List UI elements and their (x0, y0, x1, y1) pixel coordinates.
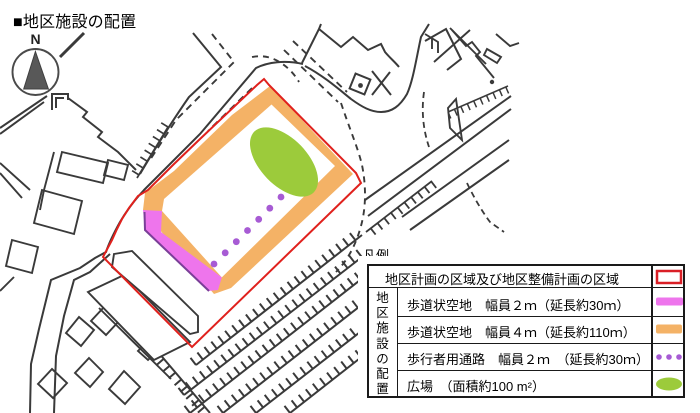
svg-text:N: N (30, 31, 40, 47)
